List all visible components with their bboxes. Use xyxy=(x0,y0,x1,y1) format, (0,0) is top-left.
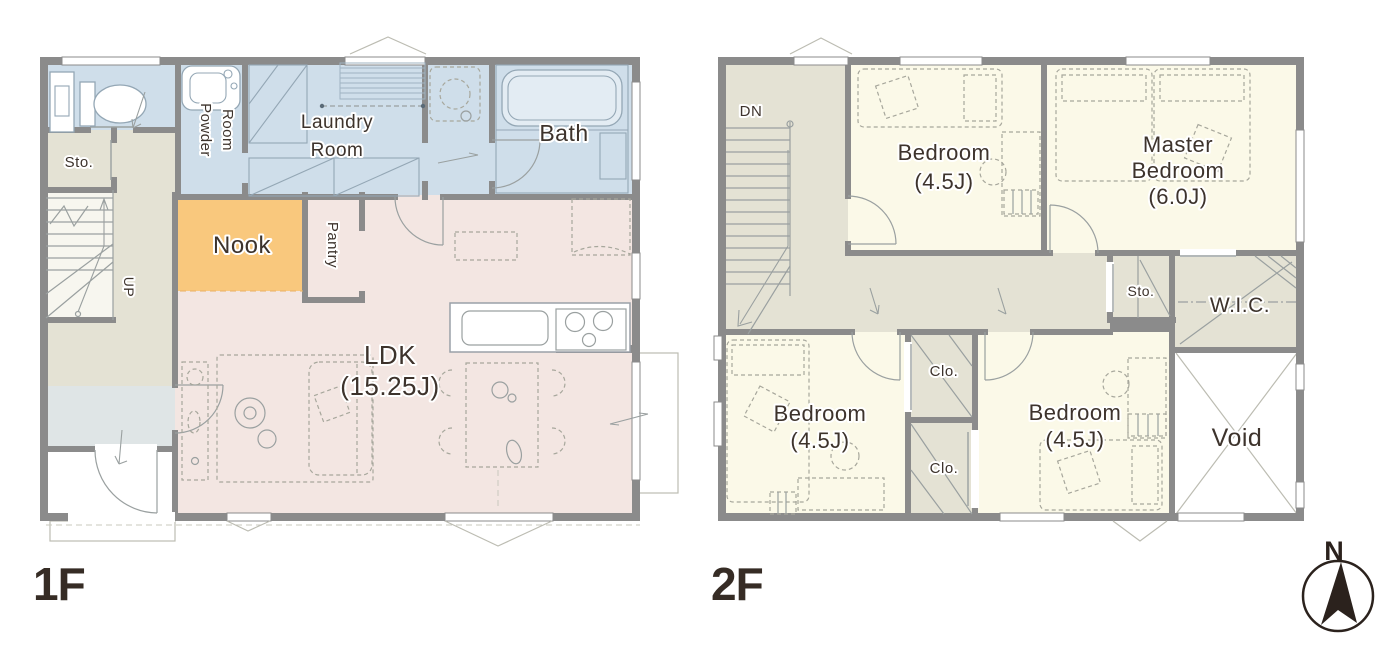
bay-mark-1 xyxy=(227,521,270,531)
room-label-powder-2: Room xyxy=(219,109,236,151)
room-label-clo-upper: Clo. xyxy=(930,363,959,380)
compass-north-arrow-icon xyxy=(1321,562,1357,625)
terrace-outline xyxy=(636,353,678,493)
room-label-powder-1: Powder xyxy=(197,103,214,157)
floor2-plan: DN Bedroom (4.5J) Master Bedroom (6.0J) … xyxy=(714,38,1304,541)
room-label-master-2: Bedroom xyxy=(1132,158,1225,183)
room-label-pantry: Pantry xyxy=(324,222,341,268)
room-label-ldk-1: LDK xyxy=(364,340,416,370)
room-label-sto-2f: Sto. xyxy=(1128,283,1155,299)
stairs-up-label: UP xyxy=(121,277,137,297)
floorplan-canvas: Sto. Powder Room Laundry Room Bath Nook … xyxy=(0,0,1396,659)
room-label-wic: W.I.C. xyxy=(1210,294,1270,317)
room-label-laundry-2: Room xyxy=(311,140,364,161)
room-label-void: Void xyxy=(1212,424,1263,452)
porch-outline xyxy=(50,521,175,541)
room-label-laundry-1: Laundry xyxy=(301,112,373,133)
room-label-bedroom-bl-1: Bedroom xyxy=(774,401,867,426)
room-washroom xyxy=(425,61,492,197)
floor2-title: 2F xyxy=(711,558,763,610)
gable-mark-2f xyxy=(790,38,852,54)
room-label-bedroom-top-2: (4.5J) xyxy=(914,169,973,194)
compass: N xyxy=(1303,536,1373,631)
room-label-bedroom-top-1: Bedroom xyxy=(898,140,991,165)
room-label-ldk-2: (15.25J) xyxy=(340,371,439,401)
room-label-clo-lower: Clo. xyxy=(930,460,959,477)
room-genkan xyxy=(46,386,175,450)
bay-mark-3 xyxy=(1113,521,1167,541)
gable-mark-1f xyxy=(350,37,426,54)
floorplan-drawing: Sto. Powder Room Laundry Room Bath Nook … xyxy=(0,0,1396,659)
room-label-bedroom-br-1: Bedroom xyxy=(1029,400,1122,425)
room-label-bedroom-br-2: (4.5J) xyxy=(1045,427,1104,452)
room-label-nook: Nook xyxy=(213,232,272,259)
room-label-sto-1f: Sto. xyxy=(65,154,94,171)
compass-north-label: N xyxy=(1324,536,1344,566)
stairs-dn-label: DN xyxy=(740,103,763,120)
room-label-master-1: Master xyxy=(1143,132,1213,157)
room-entrance xyxy=(46,450,175,515)
porch-opening xyxy=(68,512,175,522)
room-label-bedroom-bl-2: (4.5J) xyxy=(790,428,849,453)
floor1-plan: Sto. Powder Room Laundry Room Bath Nook … xyxy=(44,37,678,546)
room-label-master-3: (6.0J) xyxy=(1148,184,1207,209)
room-label-bath: Bath xyxy=(539,120,588,146)
floor1-title: 1F xyxy=(33,558,85,610)
